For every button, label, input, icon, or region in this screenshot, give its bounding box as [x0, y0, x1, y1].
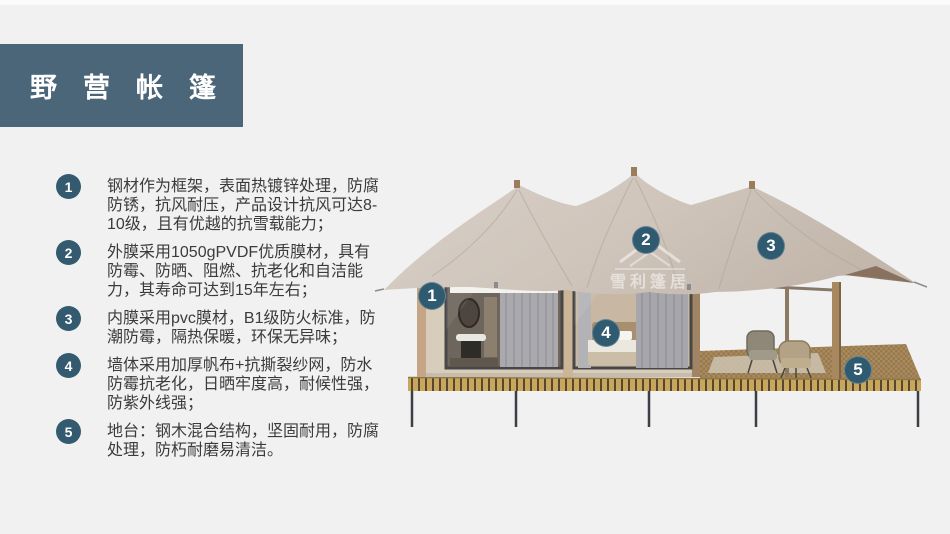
diagram-marker-3: 3	[757, 232, 785, 260]
center-mullion	[563, 283, 573, 377]
curtain-right-window	[636, 291, 688, 368]
tent-illustration: 雪利篷居	[0, 0, 950, 534]
diagram-marker-4: 4	[592, 319, 620, 347]
roof-tension-strap	[914, 282, 927, 287]
shelf-unit	[484, 297, 497, 357]
roof-tension-strap	[375, 289, 384, 291]
diagram-marker-2: 2	[632, 226, 660, 254]
sink	[456, 334, 486, 341]
watermark-text: 雪利篷居	[610, 272, 690, 291]
diagram-marker-1: 1	[418, 282, 446, 310]
deck-legs	[412, 390, 918, 427]
diagram-marker-5: 5	[844, 356, 872, 384]
window-right-bedroom	[574, 282, 691, 368]
curtain-left-window	[500, 293, 558, 367]
window-left-bathroom	[446, 284, 562, 368]
